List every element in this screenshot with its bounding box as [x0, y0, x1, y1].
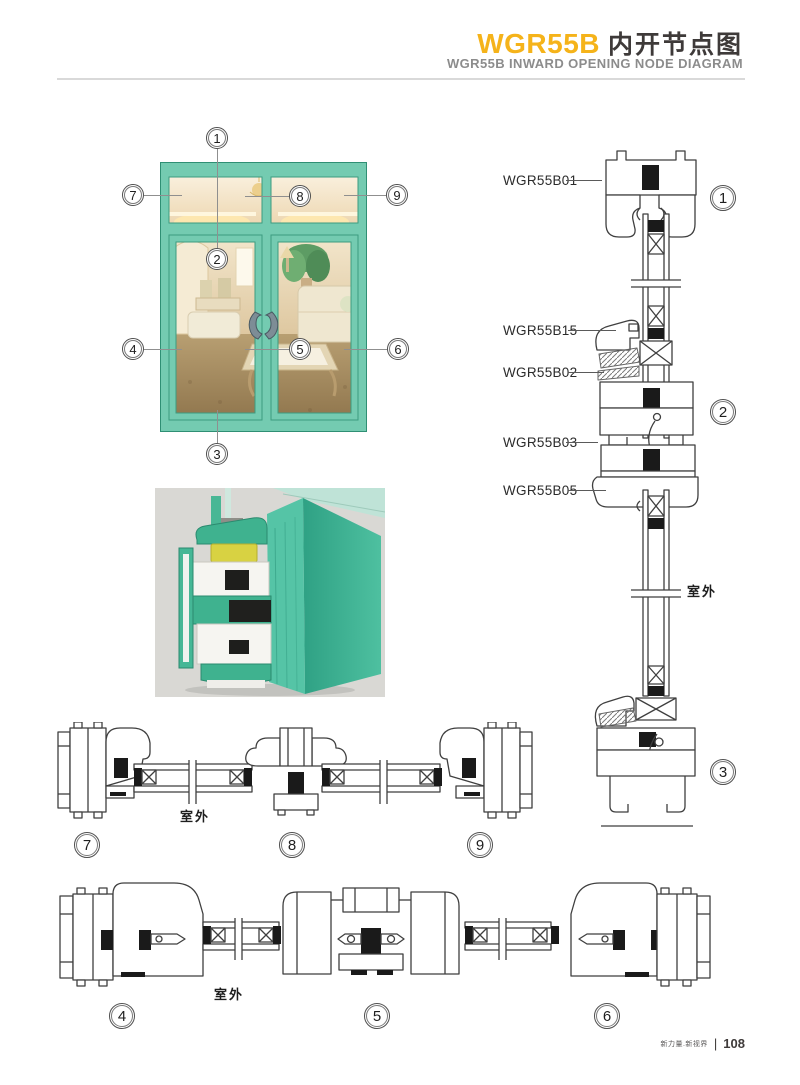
marker-number: 3: [719, 764, 727, 781]
leader-line: [566, 442, 598, 443]
callout-number: 4: [129, 342, 136, 357]
window-illustration-graphic: [160, 162, 367, 432]
footer-separator: |: [714, 1036, 717, 1051]
callout-number: 8: [296, 189, 303, 204]
section-marker-6: 6: [594, 1003, 620, 1029]
marker-number: 8: [288, 837, 296, 854]
horizontal-section-789-drawing: [50, 722, 540, 822]
profile-label-wgr55b15: WGR55B15: [503, 323, 577, 338]
marker-number: 1: [719, 190, 727, 207]
callout-line-3: [217, 410, 218, 443]
callout-line-1: [217, 149, 218, 248]
section-marker-9: 9: [467, 832, 493, 858]
header-divider: [57, 78, 745, 80]
callout-number: 7: [129, 188, 136, 203]
leader-line: [568, 490, 606, 491]
callout-number: 9: [393, 188, 400, 203]
section-marker-5: 5: [364, 1003, 390, 1029]
section-marker-2: 2: [710, 399, 736, 425]
window-callout-9: 9: [386, 184, 408, 206]
leader-line: [566, 180, 602, 181]
outdoor-label-row789: 室外: [180, 806, 210, 825]
profile-3d-render: [155, 488, 385, 697]
section-marker-1: 1: [710, 185, 736, 211]
callout-line-9: [344, 195, 386, 196]
marker-number: 9: [476, 837, 484, 854]
window-callout-8: 8: [289, 185, 311, 207]
leader-line: [568, 372, 604, 373]
footer: 新力量.新视界 | 108: [660, 1036, 745, 1051]
marker-number: 4: [118, 1008, 126, 1025]
window-callout-3: 3: [206, 443, 228, 465]
outdoor-label-vertical: 室外: [687, 581, 717, 600]
section-marker-7: 7: [74, 832, 100, 858]
footer-brand: 新力量.新视界: [660, 1039, 707, 1049]
page-number: 108: [723, 1036, 745, 1051]
leader-line: [568, 330, 616, 331]
section-marker-4: 4: [109, 1003, 135, 1029]
window-callout-2: 2: [206, 248, 228, 270]
subtitle-english: WGR55B INWARD OPENING NODE DIAGRAM: [447, 56, 743, 71]
window-callout-5: 5: [289, 338, 311, 360]
window-callout-1: 1: [206, 127, 228, 149]
callout-number: 6: [394, 342, 401, 357]
window-callout-4: 4: [122, 338, 144, 360]
marker-number: 2: [719, 404, 727, 421]
title-chinese: 内开节点图: [608, 31, 743, 59]
callout-line-8: [245, 196, 289, 197]
product-code: WGR55B: [477, 28, 600, 59]
section-marker-3: 3: [710, 759, 736, 785]
horizontal-section-456-drawing: [55, 878, 715, 993]
callout-line-7: [144, 195, 182, 196]
marker-number: 6: [603, 1008, 611, 1025]
callout-line-5: [245, 349, 289, 350]
callout-number: 5: [296, 342, 303, 357]
callout-number: 2: [213, 252, 220, 267]
marker-number: 5: [373, 1008, 381, 1025]
callout-number: 3: [213, 447, 220, 462]
profile-label-wgr55b05: WGR55B05: [503, 483, 577, 498]
marker-number: 7: [83, 837, 91, 854]
callout-line-4: [144, 349, 182, 350]
callout-number: 1: [213, 131, 220, 146]
catalog-page: WGR55B内开节点图 WGR55B INWARD OPENING NODE D…: [0, 0, 800, 1085]
callout-line-6: [344, 349, 387, 350]
profile-label-wgr55b02: WGR55B02: [503, 365, 577, 380]
outdoor-label-row456: 室外: [214, 984, 244, 1003]
window-illustration: [160, 162, 367, 432]
section-marker-8: 8: [279, 832, 305, 858]
window-callout-7: 7: [122, 184, 144, 206]
window-callout-6: 6: [387, 338, 409, 360]
